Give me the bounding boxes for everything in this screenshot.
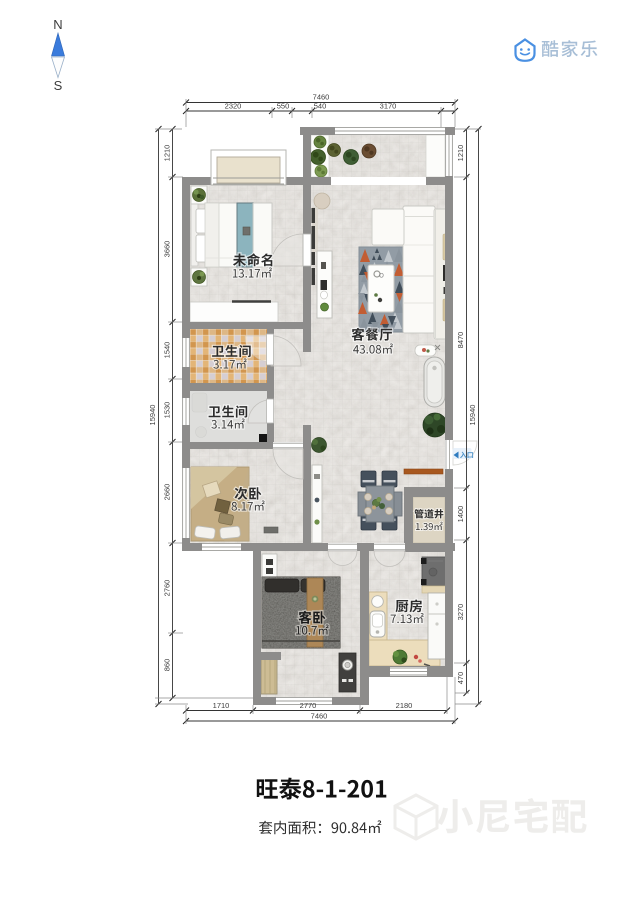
- svg-text:470: 470: [456, 672, 465, 685]
- svg-text:7460: 7460: [311, 712, 328, 721]
- svg-text:540: 540: [314, 102, 327, 111]
- svg-text:1530: 1530: [163, 402, 172, 419]
- svg-text:1210: 1210: [163, 145, 172, 162]
- svg-text:O: O: [379, 274, 384, 280]
- svg-text:1710: 1710: [213, 701, 230, 710]
- svg-text:15940: 15940: [468, 405, 477, 426]
- svg-text:2180: 2180: [396, 701, 413, 710]
- svg-text:3170: 3170: [380, 102, 397, 111]
- svg-text:7460: 7460: [313, 93, 330, 102]
- svg-text:2660: 2660: [163, 484, 172, 501]
- svg-text:2770: 2770: [300, 701, 317, 710]
- svg-text:1210: 1210: [456, 145, 465, 162]
- svg-text:1540: 1540: [163, 342, 172, 359]
- svg-text:3270: 3270: [456, 604, 465, 621]
- svg-text:3660: 3660: [163, 241, 172, 258]
- svg-text:860: 860: [163, 659, 172, 672]
- svg-text:N: N: [53, 17, 62, 32]
- svg-text:15940: 15940: [148, 405, 157, 426]
- svg-text:S: S: [54, 78, 63, 93]
- svg-text:2320: 2320: [225, 102, 242, 111]
- svg-text:2760: 2760: [163, 580, 172, 597]
- svg-text:550: 550: [277, 102, 290, 111]
- svg-text:8470: 8470: [456, 332, 465, 349]
- svg-text:1400: 1400: [456, 506, 465, 523]
